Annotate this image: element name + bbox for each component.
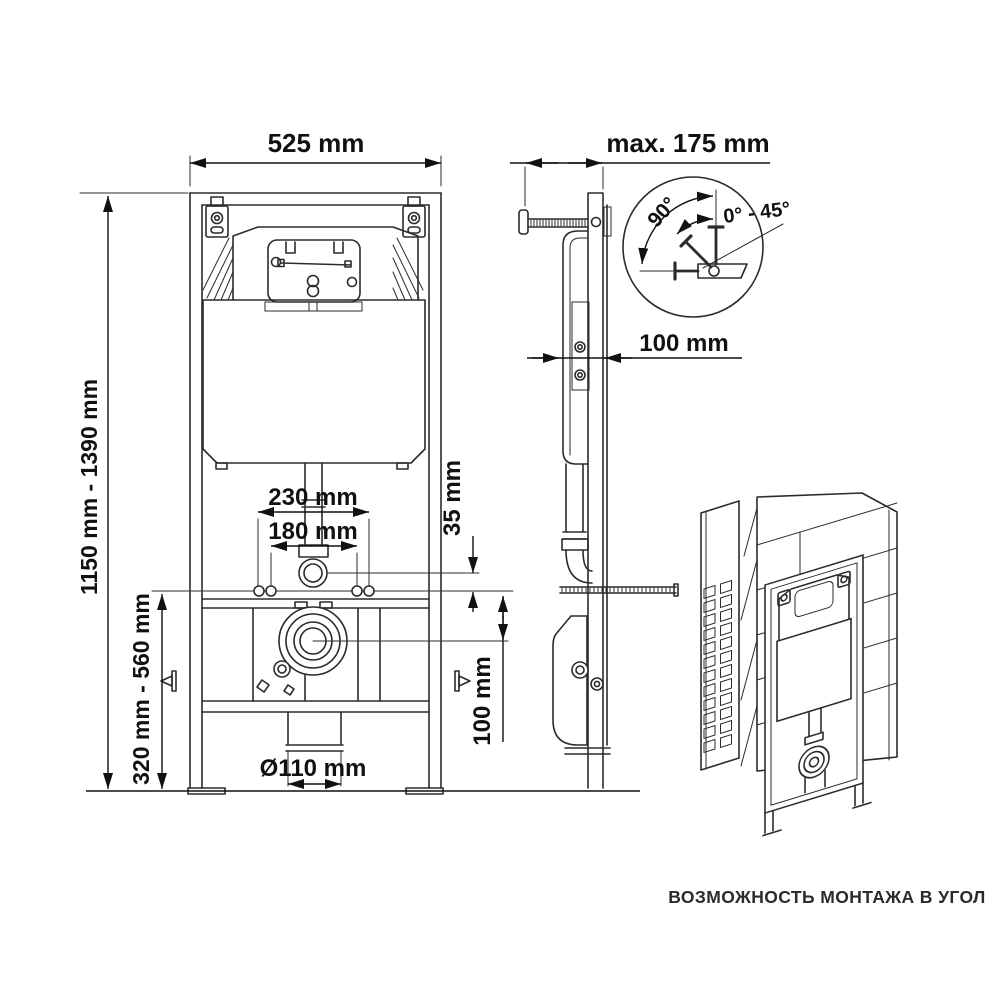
side-view (519, 193, 678, 788)
corner-caption: ВОЗМОЖНОСТЬ МОНТАЖА В УГОЛ (668, 887, 985, 907)
drain-elbow-profile (553, 616, 610, 754)
dimensions: 525 mm max. 175 mm 1150 mm - 1390 mm 320… (76, 128, 770, 789)
corner-frame (763, 553, 871, 836)
dim-outlet-range-label: 320 mm - 560 mm (128, 593, 154, 785)
access-panel (268, 240, 360, 302)
angle-detail: 90° 0° - 45° (623, 177, 792, 317)
corner-installation-view: ВОЗМОЖНОСТЬ МОНТАЖА В УГОЛ (668, 493, 985, 907)
lower-anchor-rod (560, 584, 678, 596)
front-view (86, 193, 640, 794)
dim-drain-drop-label: 100 mm (469, 656, 496, 745)
dim-offset-label: 35 mm (439, 460, 466, 536)
angle-90-label: 90° (643, 193, 681, 232)
dim-fix-outer-label: 230 mm (268, 484, 357, 511)
angle-range-label: 0° - 45° (722, 198, 791, 228)
dim-fix-inner-label: 180 mm (268, 518, 357, 545)
block-cores (704, 581, 732, 753)
dim-frame-depth-label: 100 mm (639, 330, 728, 357)
corner-wall-left (701, 501, 757, 770)
installation-frame-drawing: 90° 0° - 45° (0, 0, 1000, 1000)
upper-anchor-rod (528, 219, 588, 227)
side-anchor-right (455, 671, 470, 691)
dim-height-range-label: 1150 mm - 1390 mm (76, 379, 102, 595)
dim-depth-max-label: max. 175 mm (606, 128, 769, 158)
cistern-tank (203, 300, 425, 463)
technical-drawing-page: 90° 0° - 45° (0, 0, 1000, 1000)
dim-drain-diameter-label: Ø110 mm (260, 755, 367, 782)
cover-rib-hatching (203, 238, 423, 300)
dim-width-label: 525 mm (268, 128, 365, 158)
mounting-bracket-left (206, 197, 228, 237)
side-anchor-left (161, 671, 176, 691)
